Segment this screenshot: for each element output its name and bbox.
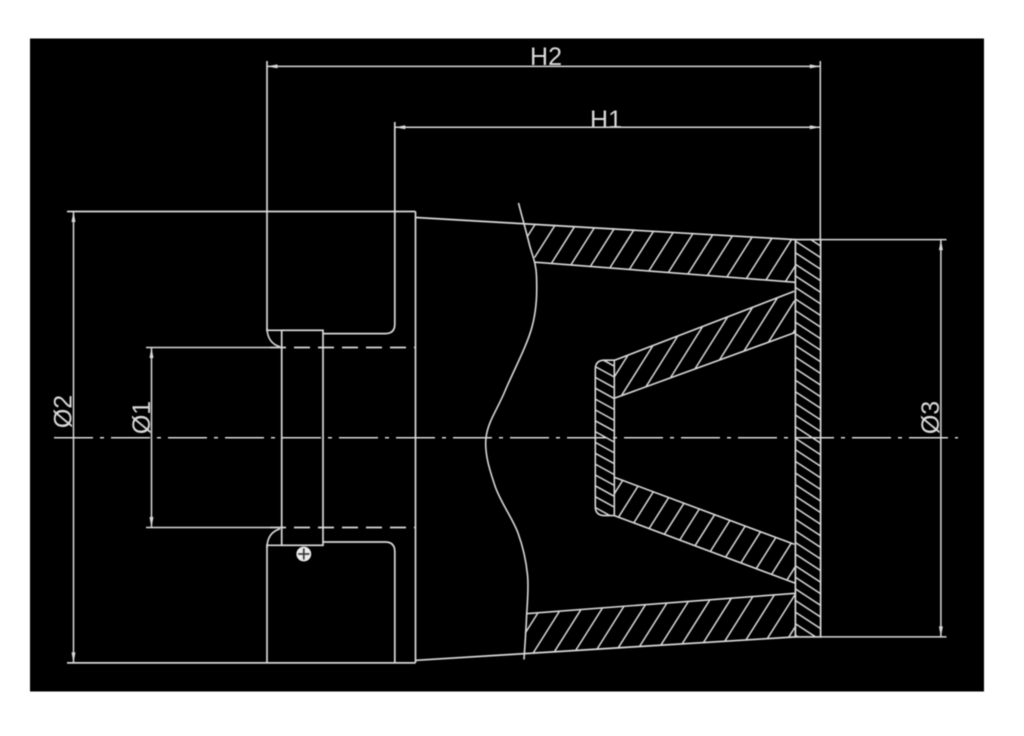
svg-text:H2: H2 [530, 43, 562, 71]
svg-text:Ø2: Ø2 [50, 395, 78, 428]
svg-text:Ø3: Ø3 [917, 401, 945, 434]
svg-text:H1: H1 [590, 106, 622, 134]
svg-text:Ø1: Ø1 [128, 401, 156, 434]
